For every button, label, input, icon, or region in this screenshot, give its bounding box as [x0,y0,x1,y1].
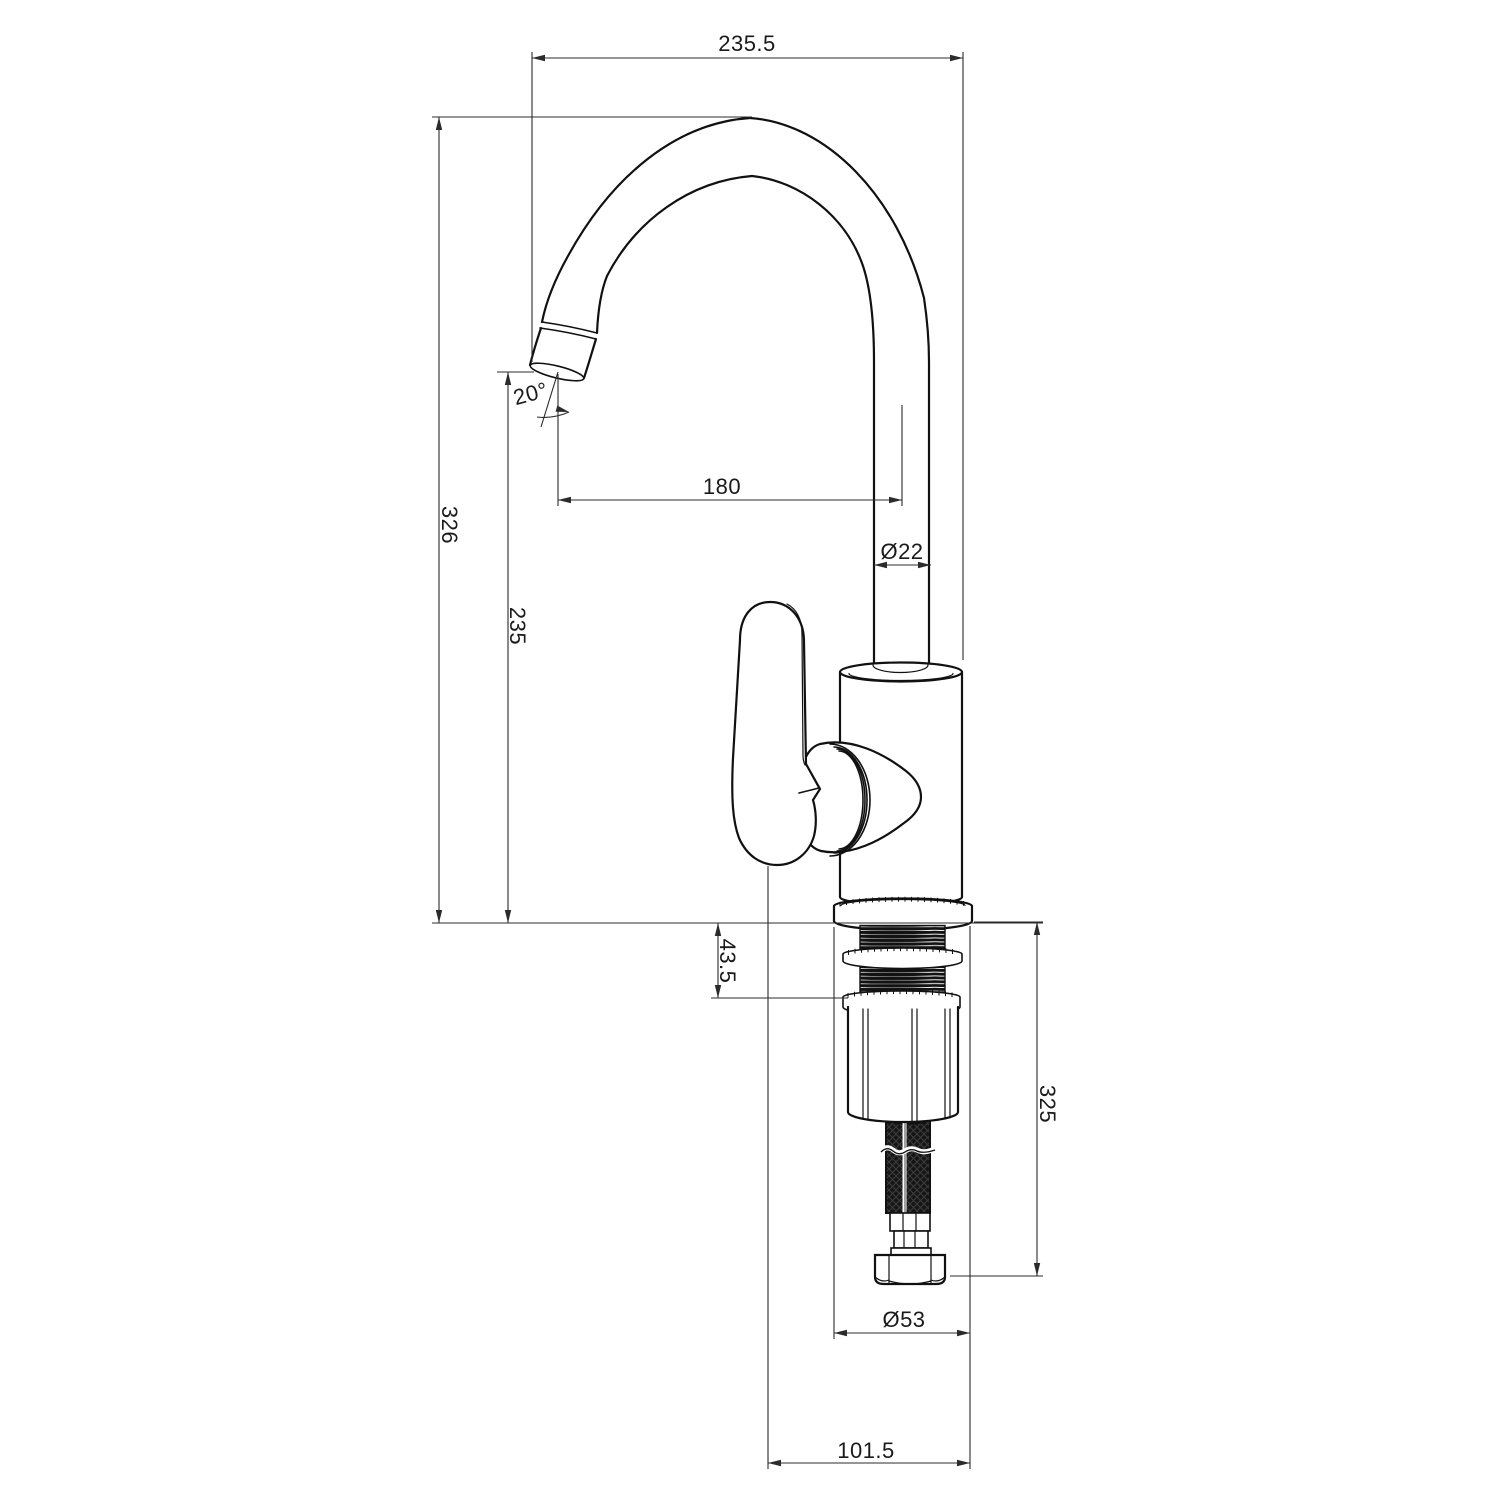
dim-label-base-diameter: Ø53 [882,1307,925,1332]
dim-label-spout-outlet-height: 235 [505,607,530,645]
dim-label-overall-width: 235.5 [718,31,776,56]
shank-washer [843,948,962,969]
dim-label-tube-diameter: Ø22 [880,539,923,564]
technical-drawing-canvas: 235.5 326 235 180 Ø22 20° 43.5 325 Ø53 1… [0,0,1500,1500]
aerator-band [542,322,597,333]
dim-label-outlet-angle: 20° [511,377,551,410]
dim-label-overall-height: 326 [437,506,462,544]
lever-handle [732,602,820,865]
dim-label-spout-reach: 180 [703,474,741,499]
faucet-outline [529,118,972,1284]
dim-label-mounting-thickness: 43.5 [715,939,740,984]
supply-hose [881,1120,935,1213]
hose-fitting [875,1213,945,1284]
angle-arc [537,412,569,417]
dim-label-under-counter-length: 325 [1035,1085,1060,1123]
drawing-page: 235.5 326 235 180 Ø22 20° 43.5 325 Ø53 1… [0,0,1500,1500]
hex-nut [875,1255,945,1284]
spout-tube [529,118,929,664]
mounting-nut [848,1007,958,1122]
dim-label-base-footprint: 101.5 [837,1438,895,1463]
